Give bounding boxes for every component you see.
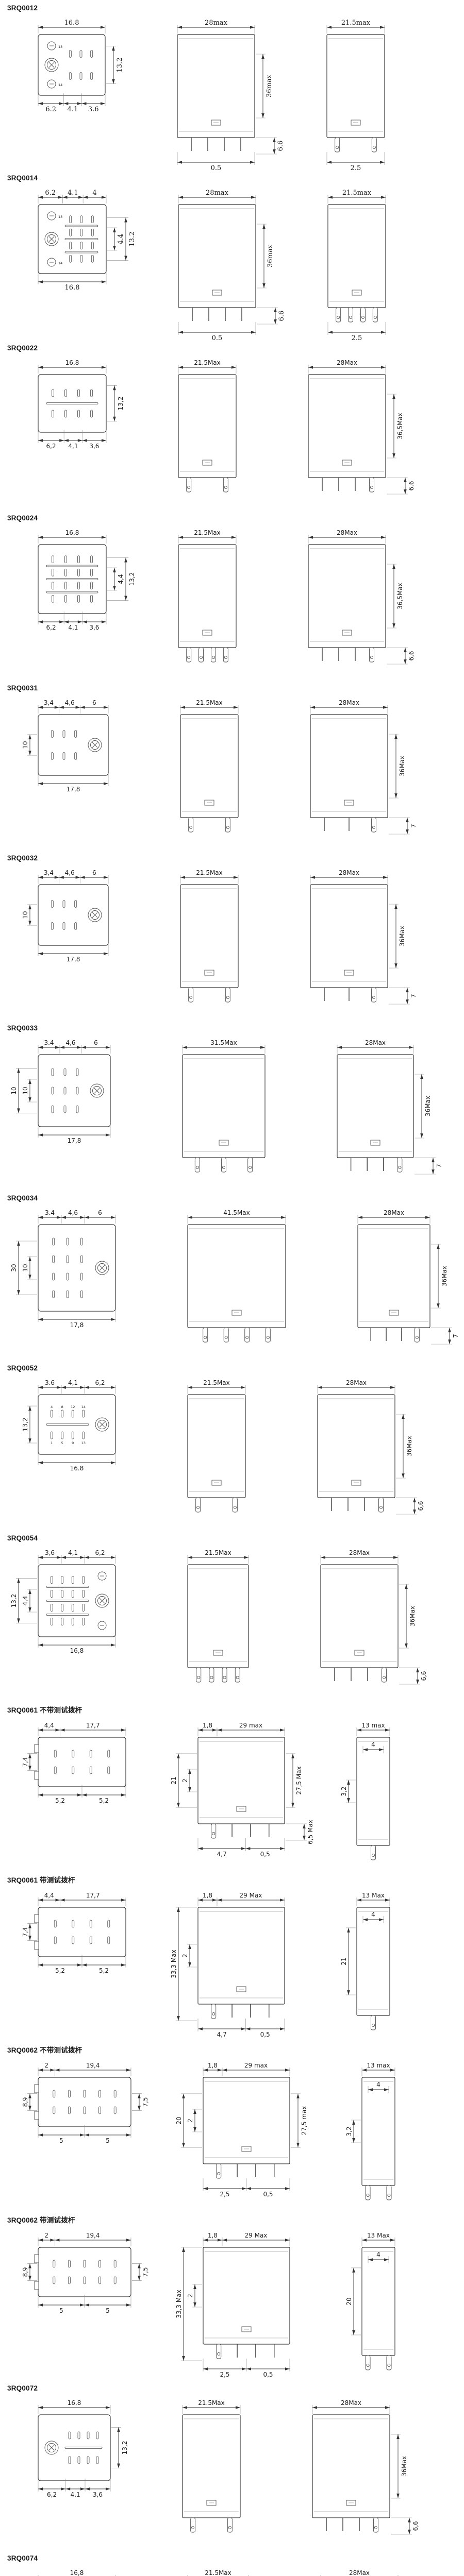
model-section: 3RQ00343.44,6617,8103041.5Max28Max36Max7 xyxy=(0,1192,464,1362)
dim-label: 28max xyxy=(206,189,229,197)
dim-label: 4,1 xyxy=(68,624,78,631)
dim-label: 36Max xyxy=(441,1266,448,1286)
dim-label: 20 xyxy=(345,2297,353,2305)
pins xyxy=(366,2355,391,2370)
dim-label: 0,5 xyxy=(263,2191,273,2198)
dim-label: 33,3 Max xyxy=(175,2290,183,2318)
dimensions: 21.5Max xyxy=(180,699,238,714)
relay-body xyxy=(178,375,236,478)
dimensions: 21.5Max xyxy=(180,869,238,884)
side-view: 21.5max2.5 xyxy=(302,183,419,345)
dim-label: 1 xyxy=(51,1441,53,1445)
dim-label: 2.5 xyxy=(351,164,361,172)
dim-label: 28Max xyxy=(349,2569,370,2576)
dim-label: 10 xyxy=(22,1264,29,1272)
dim-label: 12 xyxy=(71,1405,75,1409)
bottom-view: 3.44,6617,81030 xyxy=(12,1203,148,1332)
dim-label: 28max xyxy=(205,19,228,27)
dim-label: 7 xyxy=(410,824,417,828)
side-view: 13 Max204 xyxy=(336,2226,428,2379)
dimensions: 21.5Max xyxy=(188,2569,248,2576)
dim-label: 6,6 xyxy=(417,1501,424,1511)
relay-body xyxy=(328,205,386,308)
pins xyxy=(217,2164,274,2178)
dim-label: 2 xyxy=(44,2232,48,2239)
dim-label: 36max xyxy=(266,74,273,97)
dim-label: 36Max xyxy=(399,756,406,776)
drawing-views: 3.44,6617,8103041.5Max28Max36Max7 xyxy=(7,1203,464,1351)
dim-label: 4.1 xyxy=(68,189,78,197)
dim-label: 21.5Max xyxy=(205,2569,231,2576)
dim-label: 17,8 xyxy=(67,956,80,963)
socket-body xyxy=(35,1907,126,1957)
dim-label: 13.2 xyxy=(116,58,124,73)
front-view: 21.5Max xyxy=(153,523,269,671)
model-title: 3RQ0024 xyxy=(7,514,464,522)
relay-body xyxy=(362,2247,395,2355)
front-view: 1,829 Max4,70,5233,3 Max xyxy=(172,1886,318,2041)
front-view: 1,829 max4,70,522127,5 Max6,5 Max xyxy=(172,1716,318,1861)
pins xyxy=(195,1158,252,1172)
relay-body xyxy=(198,1907,285,2004)
screw-terminals xyxy=(45,2441,58,2454)
side-view: 28Max36,5Max6,6 xyxy=(283,523,419,671)
pins xyxy=(324,988,376,1002)
pins xyxy=(371,1845,376,1860)
front-view: 31.5Max xyxy=(157,1033,298,1181)
dim-label: 1,8 xyxy=(208,2062,218,2069)
dim-label: 28Max xyxy=(346,1379,367,1386)
dim-label: 5,2 xyxy=(55,1797,65,1804)
model-title: 3RQ0062 不带测试拨杆 xyxy=(7,2044,464,2055)
dim-label: 17,8 xyxy=(67,786,80,793)
side-view: 21.5max2.5 xyxy=(301,13,418,175)
dim-label: 1,8 xyxy=(203,1892,212,1899)
dim-label: 13,2 xyxy=(121,2441,128,2455)
model-section: 3RQ0012131416.86.24.13.613.228max0.536ma… xyxy=(0,2,464,172)
dim-label: 13 max xyxy=(361,1722,385,1729)
dim-label: 7 xyxy=(452,1334,459,1338)
pins xyxy=(196,1498,238,1512)
bottom-view: 3.44,6617,81010 xyxy=(12,1033,143,1147)
dim-label: 21.5max xyxy=(342,189,372,197)
bottom-view: 131416.86.24.13.613.2 xyxy=(12,13,138,116)
bottom-view: 4,417,75,25,27,4 xyxy=(12,1886,159,1977)
pins xyxy=(371,1328,419,1342)
dim-label: 0.5 xyxy=(211,164,222,172)
drawing-views: 3.44,6617,8101031.5Max28Max36Max7 xyxy=(7,1033,464,1181)
model-title: 3RQ0034 xyxy=(7,1194,464,1202)
dimensions: 28Max36Max6,6 xyxy=(321,2569,427,2576)
dim-label: 13.2 xyxy=(128,232,136,247)
dim-label: 3.6 xyxy=(45,1379,55,1386)
model-title: 3RQ0012 xyxy=(7,4,464,12)
pins xyxy=(336,308,378,322)
model-section: 3RQ00333.44,6617,8101031.5Max28Max36Max7 xyxy=(0,1022,464,1192)
dim-label: 14 xyxy=(58,83,62,87)
drawing-views: 4,417,75,25,27,41,829 Max4,70,5233,3 Max… xyxy=(7,1886,464,2041)
dim-label: 3,6 xyxy=(89,624,99,631)
dim-label: 17,7 xyxy=(86,1892,100,1899)
dimensions: 21.5Max xyxy=(178,529,236,544)
dim-label: 5 xyxy=(59,2137,63,2144)
dim-label: 13 xyxy=(81,1441,86,1445)
dim-label: 36Max xyxy=(406,1436,413,1456)
side-view: 13 max3,24 xyxy=(336,2056,428,2209)
model-title: 3RQ0052 xyxy=(7,1364,464,1372)
dim-label: 6 xyxy=(94,1039,98,1046)
dim-label: 10 xyxy=(22,741,29,749)
dim-label: 28Max xyxy=(341,2399,361,2406)
pins xyxy=(211,2004,269,2019)
dim-label: 4,1 xyxy=(71,2491,80,2498)
pins xyxy=(332,1498,384,1512)
side-view: 28Max36Max7 xyxy=(332,1203,463,1351)
front-view: 28max0.536max6.6 xyxy=(152,13,288,175)
pins xyxy=(322,648,374,662)
dim-label: 5,2 xyxy=(99,1797,109,1804)
dim-label: 4,1 xyxy=(68,443,78,450)
pin-slots xyxy=(65,216,98,263)
dim-label: 4.4 xyxy=(117,234,125,245)
drawing-views: 3,44,6617,81021.5Max28Max36Max7 xyxy=(7,863,464,1011)
dim-label: 7 xyxy=(436,1164,443,1168)
relay-body xyxy=(198,1737,285,1824)
model-title: 3RQ0061 不带测试拨杆 xyxy=(7,1704,464,1715)
dim-label: 4,4 xyxy=(44,1892,54,1899)
relay-body xyxy=(310,715,388,818)
dimensions: 41.5Max xyxy=(188,1209,286,1224)
dim-label: 5,2 xyxy=(55,1967,65,1974)
dim-label: 16,8 xyxy=(68,2399,81,2406)
dim-label: 29 Max xyxy=(245,2232,268,2239)
dim-label: 6,6 xyxy=(408,651,415,660)
dim-label: 29 max xyxy=(239,1722,262,1729)
dim-label: 36Max xyxy=(409,1606,416,1626)
dim-label: 10 xyxy=(10,1087,18,1094)
bottom-view: 13146.24.1416.84.413.2 xyxy=(12,183,139,294)
drawing-views: 131416.86.24.13.613.228max0.536max6.621.… xyxy=(7,13,464,175)
dim-label: 4,6 xyxy=(65,869,75,876)
dim-label: 20 xyxy=(175,2116,183,2124)
drawing-views: 16,86,24,13,613,221.5Max28Max36,5Max6.6 xyxy=(7,353,464,501)
dim-label: 21.5Max xyxy=(203,1379,230,1386)
pins xyxy=(191,138,241,151)
dimensions: 21.5Max xyxy=(188,1549,248,1564)
pins xyxy=(217,2344,274,2359)
relay-body xyxy=(312,2415,390,2518)
side-view: 28Max36Max6,6 xyxy=(292,1373,428,1521)
model-section: 3RQ0062 带测试拨杆219,4558,97,51,829 Max2,50,… xyxy=(0,2212,464,2382)
pins xyxy=(189,818,230,832)
model-section: 3RQ0074131416,86,24,13,64,413,221.5Max28… xyxy=(0,2552,464,2576)
dim-label: 4,4 xyxy=(22,1596,29,1605)
dim-label: 3.4 xyxy=(44,1039,54,1046)
dim-label: 6,2 xyxy=(46,443,56,450)
bottom-view: 131416,86,24,13,64,413,2 xyxy=(12,2563,148,2576)
dim-label: 4,7 xyxy=(217,2031,227,2038)
pins xyxy=(335,1668,387,1682)
pins xyxy=(189,988,230,1002)
dim-label: 4 xyxy=(371,1911,375,1918)
dim-label: 28Max xyxy=(337,359,357,366)
bottom-view: 219,4558,97,5 xyxy=(12,2226,164,2317)
dim-label: 4.1 xyxy=(68,106,78,113)
dim-label: 17,8 xyxy=(70,1321,84,1329)
drawing-views: 16,86,24,13,64,413,221.5Max28Max36,5Max6… xyxy=(7,523,464,671)
relay-body xyxy=(180,715,238,818)
side-view: 28Max36Max7 xyxy=(285,693,421,841)
front-view: 21.5Max xyxy=(153,353,269,501)
dim-label: 19,4 xyxy=(86,2062,100,2069)
pins xyxy=(187,478,228,492)
relay-body xyxy=(358,1225,430,1328)
dim-label: 6.2 xyxy=(45,189,56,197)
bottom-view: 16,86,24,13,613,2 xyxy=(12,2393,143,2501)
model-title: 3RQ0062 带测试拨杆 xyxy=(7,2214,464,2225)
front-view: 1,829 max2,50,522027,5 max xyxy=(177,2056,323,2201)
dim-label: 0,5 xyxy=(260,2031,270,2038)
pins xyxy=(366,2185,391,2200)
dim-label: 3,2 xyxy=(340,1786,347,1796)
model-section: 3RQ00543,64,16,216,84,413,221.5Max28Max3… xyxy=(0,1532,464,1702)
dim-label: 13 Max xyxy=(367,2232,390,2239)
dim-label: 21 xyxy=(170,1776,177,1784)
model-title: 3RQ0031 xyxy=(7,684,464,692)
side-view: 28Max36Max6,6 xyxy=(287,2393,423,2541)
pins xyxy=(203,1328,271,1342)
dim-label: 6,6 xyxy=(420,1671,427,1681)
pins xyxy=(326,2518,378,2532)
model-section: 3RQ0052418512914133.64,16,216.813,221.5M… xyxy=(0,1362,464,1532)
bottom-view: 219,4558,97,5 xyxy=(12,2056,164,2147)
dim-label: 2,5 xyxy=(220,2371,229,2378)
drawing-views: 16,86,24,13,613,221.5Max28Max36Max6,6 xyxy=(7,2393,464,2541)
dim-label: 3,4 xyxy=(44,699,54,706)
dim-label: 10 xyxy=(22,1087,29,1094)
dim-label: 36,5Max xyxy=(396,583,404,609)
dim-label: 4 xyxy=(92,189,96,197)
dim-label: 4 xyxy=(51,1405,53,1409)
drawing-views: 13146.24.1416.84.413.228max0.536max6.621… xyxy=(7,183,464,345)
relay-body xyxy=(362,2077,395,2185)
side-view: 28Max36Max7 xyxy=(285,863,421,1011)
dim-label: 36max xyxy=(267,244,274,267)
dimensions: 21.5Max xyxy=(188,1379,245,1394)
relay-body xyxy=(180,885,238,988)
dim-label: 27,5 Max xyxy=(295,1766,303,1794)
relay-body xyxy=(203,2077,290,2164)
dim-label: 13 max xyxy=(367,2062,390,2069)
datasheet-page: 3RQ0012131416.86.24.13.613.228max0.536ma… xyxy=(0,0,464,2576)
dim-label: 3,4 xyxy=(44,869,54,876)
dim-label: 1,8 xyxy=(208,2232,218,2239)
relay-body xyxy=(308,375,386,478)
dimensions: 21.5Max xyxy=(183,2399,240,2414)
dim-label: 2 xyxy=(187,2119,194,2123)
dim-label: 6 xyxy=(92,699,96,706)
dim-label: 16,8 xyxy=(70,1647,84,1654)
dim-label: 3,6 xyxy=(89,443,99,450)
model-section: 3RQ007216,86,24,13,613,221.5Max28Max36Ma… xyxy=(0,2382,464,2552)
model-section: 3RQ002416,86,24,13,64,413,221.5Max28Max3… xyxy=(0,512,464,682)
pins xyxy=(335,138,377,152)
dim-label: 2 xyxy=(44,2062,48,2069)
dim-label: 27,5 max xyxy=(301,2106,308,2136)
dim-label: 4 xyxy=(376,2081,380,2088)
dim-label: 6,2 xyxy=(95,1379,105,1386)
pins xyxy=(371,2015,376,2030)
screw-terminals xyxy=(88,738,102,752)
relay-body xyxy=(178,545,236,648)
dim-label: 3.6 xyxy=(88,106,99,113)
relay-body xyxy=(183,1055,265,1158)
dim-label: 4,6 xyxy=(65,699,75,706)
model-title: 3RQ0074 xyxy=(7,2554,464,2562)
dim-label: 41.5Max xyxy=(223,1209,250,1216)
relay-body xyxy=(357,1737,390,1845)
drawing-views: 418512914133.64,16,216.813,221.5Max28Max… xyxy=(7,1373,464,1521)
dim-label: 6.2 xyxy=(45,106,56,113)
relay-body xyxy=(177,35,255,138)
bottom-view: 3,44,6617,810 xyxy=(12,693,141,796)
dim-label: 13,2 xyxy=(10,1594,18,1608)
pins xyxy=(351,1158,402,1172)
dim-label: 33,3 Max xyxy=(170,1950,177,1978)
model-section: 3RQ00313,44,6617,81021.5Max28Max36Max7 xyxy=(0,682,464,852)
dim-label: 6,2 xyxy=(95,1549,105,1556)
dim-label: 21 xyxy=(340,1957,347,1965)
dim-label: 36Max xyxy=(424,1096,432,1116)
dim-label: 6,6 xyxy=(412,2521,419,2531)
dim-label: 4,1 xyxy=(68,1549,78,1556)
dim-label: 16.8 xyxy=(64,19,79,27)
pins xyxy=(192,308,242,321)
dim-label: 2 xyxy=(181,1778,189,1783)
dim-label: 7,5 xyxy=(142,2097,149,2107)
dim-label: 21.5Max xyxy=(196,869,223,876)
dim-label: 7,4 xyxy=(22,1757,29,1767)
relay-body xyxy=(188,1395,245,1498)
dim-label: 17,7 xyxy=(86,1722,100,1729)
dim-label: 6,2 xyxy=(46,624,56,631)
dim-label: 4,6 xyxy=(68,1209,78,1216)
dim-label: 4,6 xyxy=(65,1039,75,1046)
relay-body xyxy=(321,1565,398,1668)
relay-body xyxy=(203,2247,290,2344)
pins xyxy=(211,1824,269,1838)
drawing-views: 3,64,16,216,84,413,221.5Max28Max36Max6,6 xyxy=(7,1543,464,1691)
model-section: 3RQ0061 不带测试拨杆4,417,75,25,27,41,829 max4… xyxy=(0,1702,464,1872)
dim-label: 14 xyxy=(58,261,62,265)
dim-label: 29 max xyxy=(244,2062,268,2069)
dim-label: 4 xyxy=(376,2251,380,2258)
front-view: 21.5Max xyxy=(157,2393,273,2541)
dim-label: 13,2 xyxy=(128,572,136,586)
dim-label: 28Max xyxy=(384,1209,404,1216)
pins xyxy=(322,478,374,492)
socket-body xyxy=(35,2247,131,2297)
dim-label: 5,2 xyxy=(99,1967,109,1974)
model-section: 3RQ001413146.24.1416.84.413.228max0.536m… xyxy=(0,172,464,342)
dim-label: 8,9 xyxy=(22,2097,29,2107)
model-title: 3RQ0072 xyxy=(7,2384,464,2392)
dim-label: 3,6 xyxy=(45,1549,55,1556)
side-view: 28Max36Max6,6 xyxy=(295,2563,431,2576)
relay-body xyxy=(357,1907,390,2015)
dim-label: 3.4 xyxy=(45,1209,55,1216)
dim-label: 6.6 xyxy=(277,141,285,151)
dim-label: 8,9 xyxy=(22,2267,29,2277)
dim-label: 30 xyxy=(10,1264,18,1272)
model-section: 3RQ00323,44,6617,81021.5Max28Max36Max7 xyxy=(0,852,464,1022)
socket-body xyxy=(35,1737,126,1787)
model-title: 3RQ0014 xyxy=(7,174,464,182)
dim-label: 28Max xyxy=(337,529,357,536)
dim-label: 28Max xyxy=(339,869,359,876)
dim-label: 7,4 xyxy=(22,1927,29,1937)
relay-body xyxy=(310,885,388,988)
drawing-views: 4,417,75,25,27,41,829 max4,70,522127,5 M… xyxy=(7,1716,464,1869)
front-view: 41.5Max xyxy=(162,1203,319,1351)
dim-label: 6.6 xyxy=(278,311,286,321)
dim-label: 4,4 xyxy=(44,1722,54,1729)
model-section: 3RQ0061 带测试拨杆4,417,75,25,27,41,829 Max4,… xyxy=(0,1872,464,2042)
dim-label: 2 xyxy=(187,2294,194,2298)
dim-label: 6.6 xyxy=(408,481,415,490)
dim-label: 6 xyxy=(92,869,96,876)
dim-label: 13,2 xyxy=(22,1418,29,1432)
dim-label: 6,5 Max xyxy=(307,1820,314,1844)
model-section: 3RQ002216,86,24,13,613,221.5Max28Max36,5… xyxy=(0,342,464,512)
dim-label: 4,1 xyxy=(68,1379,78,1386)
dim-label: 13 Max xyxy=(362,1892,385,1899)
side-view: 13 Max214 xyxy=(331,1886,423,2039)
dim-label: 2,5 xyxy=(220,2191,229,2198)
bottom-view: 16,86,24,13,64,413,2 xyxy=(12,523,139,634)
dim-label: 9 xyxy=(72,1441,74,1445)
relay-body xyxy=(318,1395,395,1498)
relay-body xyxy=(183,2415,240,2518)
drawing-views: 131416,86,24,13,64,413,221.5Max28Max36Ma… xyxy=(7,2563,464,2576)
dim-label: 3,6 xyxy=(93,2491,103,2498)
dim-label: 4,4 xyxy=(117,574,124,584)
front-view: 21.5Max xyxy=(155,863,271,1011)
section-list: 3RQ0012131416.86.24.13.613.228max0.536ma… xyxy=(0,2,464,2576)
screw-terminals xyxy=(95,1261,109,1275)
side-view: 28Max36Max7 xyxy=(311,1033,446,1181)
pins xyxy=(187,648,228,662)
dim-label: 13 xyxy=(58,215,62,219)
dim-label: 21.5Max xyxy=(196,699,223,706)
model-title: 3RQ0061 带测试拨杆 xyxy=(7,1874,464,1885)
side-view: 13 max3,24 xyxy=(331,1716,423,1869)
pins xyxy=(196,1668,240,1682)
dim-label: 16.8 xyxy=(65,284,80,292)
dim-label: 7,5 xyxy=(142,2267,149,2277)
dim-label: 21.5Max xyxy=(205,1549,231,1556)
screw-terminals xyxy=(95,1418,109,1431)
bottom-view: 3,44,6617,810 xyxy=(12,863,141,966)
pins xyxy=(324,818,376,832)
dim-label: 16,8 xyxy=(65,529,79,536)
drawing-views: 3,44,6617,81021.5Max28Max36Max7 xyxy=(7,693,464,841)
dimensions: 16,86,24,13,64,413,2 xyxy=(38,2569,145,2576)
dim-label: 28Max xyxy=(349,1549,370,1556)
side-view: 28Max36,5Max6.6 xyxy=(283,353,419,501)
dim-label: 8 xyxy=(61,1405,63,1409)
drawing-views: 219,4558,97,51,829 Max2,50,5233,3 Max13 … xyxy=(7,2226,464,2381)
